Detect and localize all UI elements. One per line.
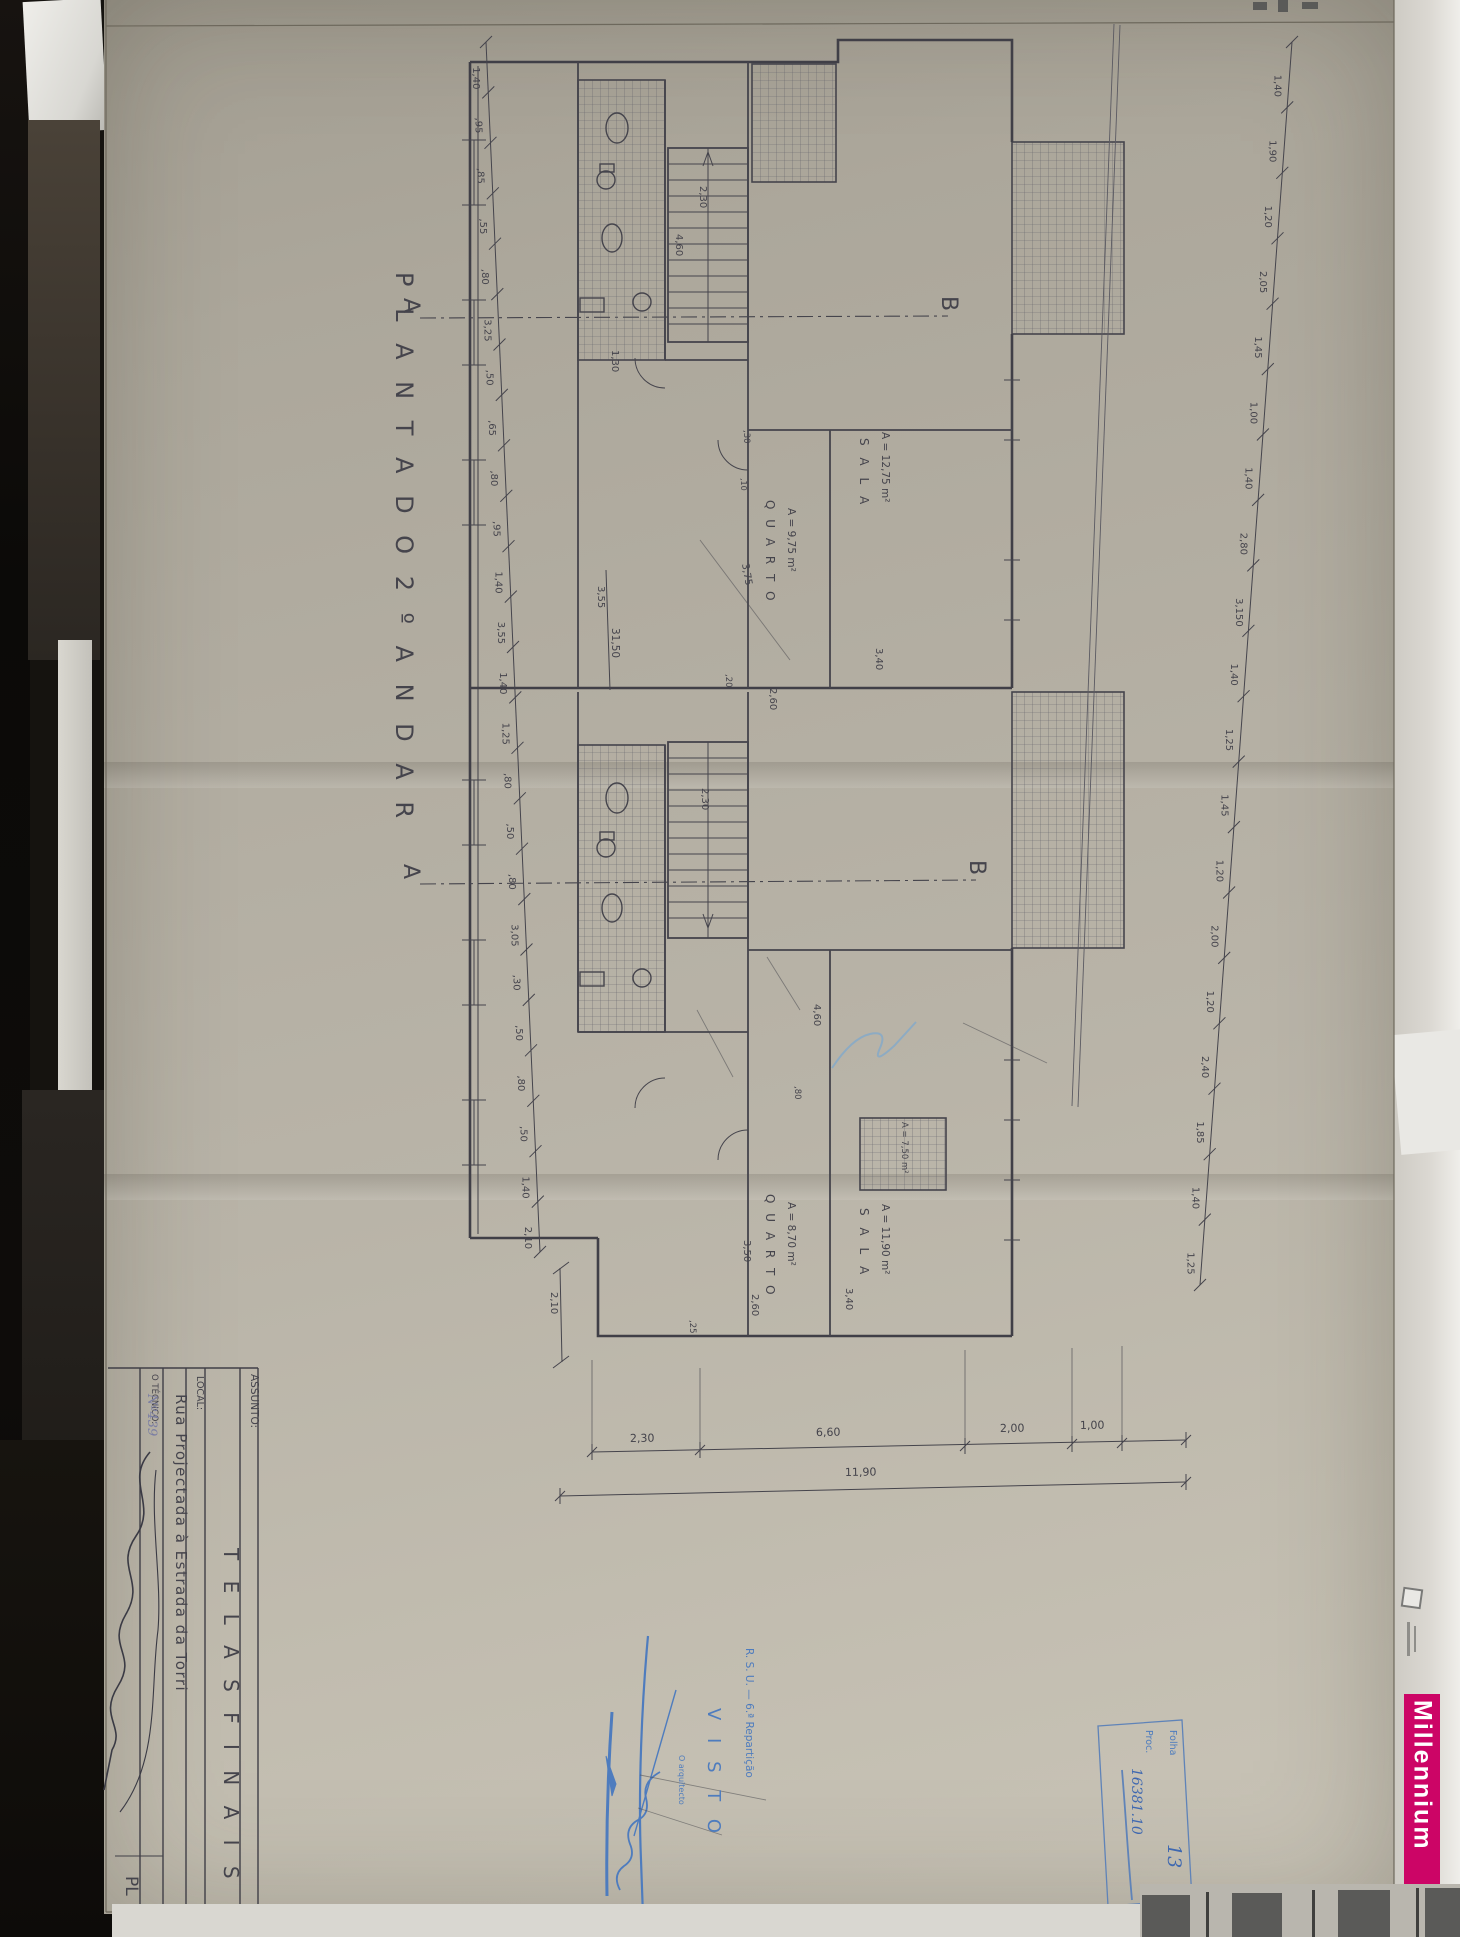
stamp-folha-label: Folha	[1167, 1730, 1178, 1755]
dim: 3,75	[739, 563, 754, 587]
dim: 3,55	[595, 586, 606, 608]
titleblock-sheet-code: PL	[121, 1876, 141, 1896]
stairs	[668, 148, 748, 938]
dim-chain-value: 1,45	[1218, 794, 1229, 816]
room-sala-1-area: A = 12,75 m²	[879, 432, 891, 503]
room-sala-2-area: A = 11,90 m²	[879, 1204, 891, 1275]
dim-chain-value: ,50	[513, 1025, 524, 1041]
dim-chain-value: ,80	[506, 874, 517, 890]
dim: 2,60	[749, 1294, 760, 1316]
dim: ,25	[687, 1320, 697, 1334]
top-mark	[1278, 0, 1288, 12]
divider-line	[1206, 1892, 1209, 1937]
dim-chain-value: 1,40	[1272, 75, 1283, 97]
dim-chain-value: ,30	[511, 975, 522, 991]
dim-chain-value: 1,25	[1184, 1252, 1195, 1274]
dim-stair-length: 4,60	[673, 234, 684, 256]
right-dimension-chain	[1194, 36, 1298, 1291]
dim-bottom: 1,00	[1080, 1419, 1105, 1432]
divider-line	[1312, 1890, 1315, 1937]
section-marker-a-top: A	[398, 298, 423, 313]
dim-chain-value: 1,00	[1247, 402, 1258, 424]
stamp-proc-value: 16381.10	[1128, 1768, 1144, 1835]
dim: 2,60	[767, 688, 778, 710]
label-layer: P L A N T A D O 2 º A N D A RABABQ U A R…	[121, 186, 1185, 1896]
dim-chain-value: ,50	[484, 370, 495, 386]
pencil-marks	[638, 540, 1047, 1835]
dim-stair-width-2: 2,30	[699, 788, 710, 810]
section-marker-a-bottom: A	[398, 864, 423, 879]
dim-chain-value: 2,80	[1238, 533, 1249, 555]
sheet-edges	[106, 0, 1394, 1937]
dim-chain-value: ,50	[504, 824, 515, 840]
dark-square	[1338, 1890, 1390, 1937]
dark-square	[1425, 1888, 1460, 1937]
titleblock-local-value: Rua Projectada à Estrada da Torri	[172, 1394, 190, 1692]
photo-of-floorplan: P L A N T A D O 2 º A N D A RABABQ U A R…	[0, 0, 1460, 1937]
titleblock-tecnico-number: Nº439	[144, 1393, 159, 1436]
dim-chain-value: 1,40	[520, 1176, 531, 1198]
underlying-paper-bottom	[112, 1904, 1152, 1937]
dim-chain-value: ,80	[515, 1076, 526, 1092]
titleblock-assunto-value: T E L A S F I N A I S	[219, 1547, 243, 1886]
dim-chain-value: 3,25	[481, 319, 492, 341]
dim-chain-value: 3,150	[1233, 598, 1244, 627]
dim-chain-value: 3,05	[508, 924, 519, 946]
dim-chain-value: 1,40	[1243, 467, 1254, 489]
dim-chain-value: 1,40	[1189, 1187, 1200, 1209]
dim-chain-value: ,95	[472, 118, 483, 134]
dim-chain-value: 1,25	[499, 723, 510, 745]
left-dimension-chain	[480, 36, 546, 1258]
dim-chain-value: 1,45	[1252, 336, 1263, 358]
dim: 3,40	[873, 648, 884, 670]
tecnico-signature	[104, 1452, 159, 1812]
microtext-line	[1414, 1626, 1416, 1652]
dim-stair-length-2: 4,60	[811, 1004, 822, 1026]
dim-chain-value: ,65	[486, 420, 497, 436]
dim-bottom-total: 11,90	[845, 1465, 877, 1479]
room-sala-1: S A L A	[857, 438, 871, 508]
dim-chain-value: ,55	[477, 219, 488, 235]
dim-chain-value: ,50	[517, 1126, 528, 1142]
blue-pencil-scribble	[832, 1022, 916, 1068]
dim: ,30	[741, 430, 751, 444]
dim-chain-value: ,80	[488, 471, 499, 487]
stamp-arquitecto: O arquitecto	[677, 1755, 686, 1805]
dim-bottom: 2,30	[630, 1432, 655, 1445]
dim-chain-value: 1,40	[1228, 664, 1239, 686]
dim-chain-value: ,80	[502, 773, 513, 789]
plan-title: P L A N T A D O 2 º A N D A R	[390, 272, 418, 825]
section-marker-b-bottom: B	[964, 860, 989, 875]
dim: 3,40	[843, 1288, 854, 1310]
top-mark	[1302, 2, 1318, 9]
dark-square	[1142, 1895, 1190, 1937]
stamp-visto: V I S T O	[703, 1708, 724, 1839]
dim: ,10	[739, 478, 748, 491]
floor-plan-svg: P L A N T A D O 2 º A N D A RABABQ U A R…	[0, 0, 1460, 1937]
dim-bottom: 2,00	[1000, 1422, 1025, 1435]
section-marker-b-top: B	[936, 296, 961, 311]
dim: 1,30	[609, 350, 620, 372]
dim-chain-value: 3,55	[495, 622, 506, 644]
visto-signature	[606, 1636, 676, 1916]
dim: ,80	[792, 1086, 802, 1100]
room-quarto-2-area: A = 8,70 m²	[785, 1202, 797, 1266]
dim-chain-value: 1,25	[1223, 729, 1234, 751]
microtext-line	[1407, 1622, 1410, 1656]
dim-chain-value: 1,40	[497, 672, 508, 694]
dim-chain-value: 1,20	[1214, 860, 1225, 882]
dim-bottom: 6,60	[816, 1426, 841, 1439]
dim-chain-value: ,95	[490, 521, 501, 537]
dim-chain-value: 1,90	[1267, 140, 1278, 162]
dim-total-length: 31,50	[609, 628, 621, 658]
stamp-proc-label: Proc.	[1143, 1730, 1154, 1753]
dark-square	[1232, 1893, 1282, 1937]
tiled-areas	[578, 64, 1124, 1190]
dim-chain-value: 1,20	[1204, 991, 1215, 1013]
dim-chain-value: ,80	[479, 269, 490, 285]
room-quarto-1: Q U A R T O	[763, 500, 777, 604]
stamp-rsu: R. S. U. — 6.ª Repartição	[743, 1648, 755, 1778]
dim: ,20	[723, 674, 733, 688]
dim-chain-value: ,85	[475, 168, 486, 184]
room-quarto-2: Q U A R T O	[763, 1194, 777, 1298]
dim-chain-value: 1,40	[470, 67, 481, 89]
dim-chain-value: 2,05	[1257, 271, 1268, 293]
checkbox-icon	[1401, 1587, 1424, 1610]
titleblock-local-label: LOCAL:	[194, 1376, 205, 1410]
dim-chain-value: 1,20	[1262, 206, 1273, 228]
dim: 2,10	[548, 1292, 559, 1314]
top-mark	[1253, 2, 1267, 10]
dim-chain-value: 1,85	[1194, 1121, 1205, 1143]
room-quarto-1-area: A = 9,75 m²	[785, 508, 797, 572]
dim-stair-width: 2,30	[697, 186, 708, 208]
dim: 3,50	[741, 1240, 752, 1262]
dim-chain-value: 2,40	[1199, 1056, 1210, 1078]
titleblock-assunto-label: ASSUNTO:	[248, 1374, 260, 1428]
stamp-folha-value: 13	[1163, 1844, 1185, 1868]
dim-chain-value: 2,00	[1209, 925, 1220, 947]
room-balcony-area: A = 7,50 m²	[899, 1122, 909, 1174]
room-sala-2: S A L A	[857, 1208, 871, 1278]
section-lines	[420, 316, 976, 884]
dim-chain-value: 2,10	[522, 1227, 533, 1249]
divider-line	[1416, 1888, 1419, 1937]
dim-chain-value: 1,40	[493, 571, 504, 593]
